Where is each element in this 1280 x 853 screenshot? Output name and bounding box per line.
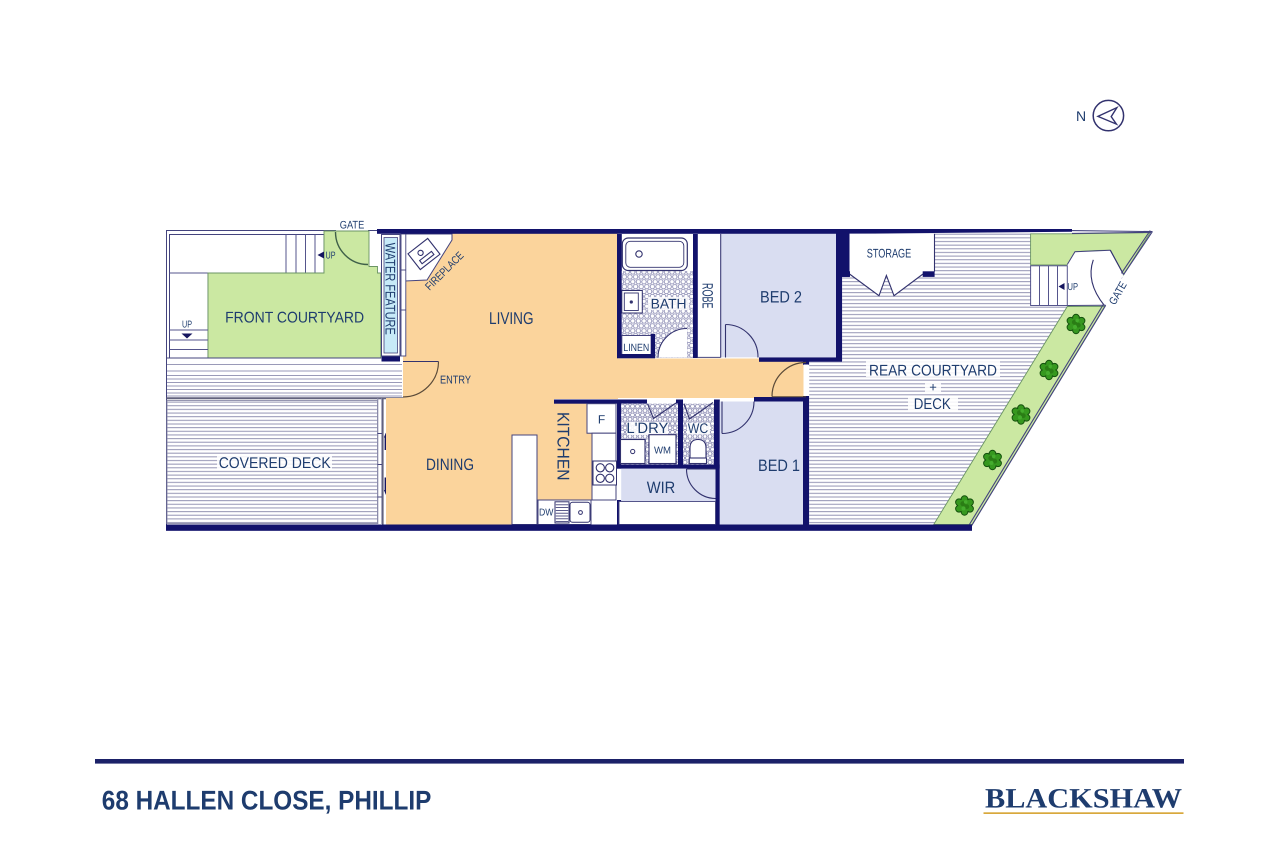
svg-text:WATER FEATURE: WATER FEATURE bbox=[383, 243, 399, 335]
svg-text:UP: UP bbox=[1068, 282, 1079, 293]
svg-text:WC: WC bbox=[688, 420, 709, 436]
svg-text:UP: UP bbox=[326, 250, 336, 261]
svg-text:LINEN: LINEN bbox=[623, 342, 649, 354]
svg-text:STORAGE: STORAGE bbox=[867, 247, 912, 261]
svg-text:LIVING: LIVING bbox=[489, 309, 534, 328]
svg-text:BLACKSHAW: BLACKSHAW bbox=[985, 784, 1182, 815]
svg-text:REAR COURTYARD: REAR COURTYARD bbox=[869, 362, 997, 379]
svg-text:KITCHEN: KITCHEN bbox=[554, 412, 573, 481]
svg-text:WM: WM bbox=[654, 446, 671, 457]
svg-text:BATH: BATH bbox=[651, 295, 687, 311]
svg-text:FRONT COURTYARD: FRONT COURTYARD bbox=[225, 309, 364, 326]
svg-text:F: F bbox=[598, 413, 605, 427]
svg-text:ROBE: ROBE bbox=[699, 283, 716, 309]
svg-text:UP: UP bbox=[182, 320, 192, 331]
svg-text:DW: DW bbox=[539, 508, 554, 519]
svg-text:DECK: DECK bbox=[914, 396, 952, 413]
svg-text:BED 2: BED 2 bbox=[760, 289, 802, 307]
svg-text:N: N bbox=[1076, 108, 1086, 124]
svg-text:WIR: WIR bbox=[647, 479, 676, 497]
svg-text:COVERED DECK: COVERED DECK bbox=[219, 455, 332, 472]
svg-text:GATE: GATE bbox=[340, 220, 365, 232]
svg-text:+: + bbox=[929, 380, 937, 395]
svg-text:DINING: DINING bbox=[426, 456, 474, 474]
svg-text:BED 1: BED 1 bbox=[758, 457, 800, 475]
svg-text:ENTRY: ENTRY bbox=[440, 375, 471, 387]
svg-text:68 HALLEN CLOSE, PHILLIP: 68 HALLEN CLOSE, PHILLIP bbox=[102, 786, 432, 816]
